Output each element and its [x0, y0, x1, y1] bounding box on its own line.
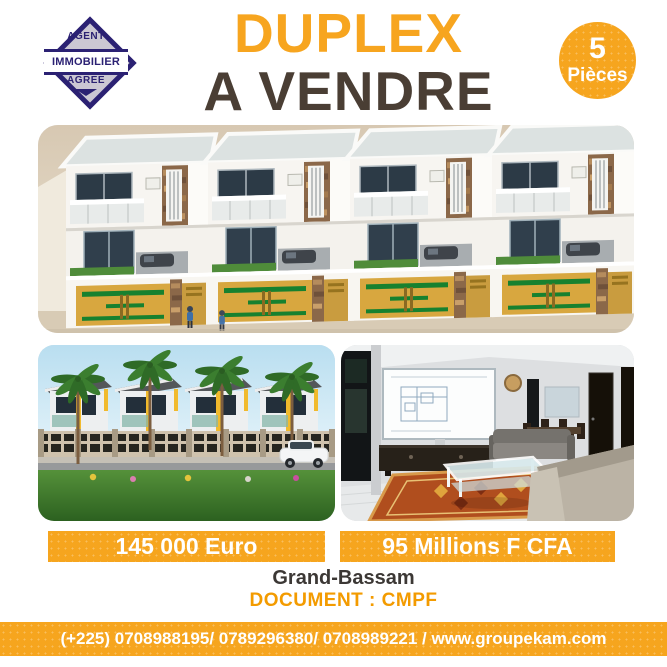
interior-render-svg [341, 345, 634, 521]
title-line-a-vendre: A VENDRE [140, 64, 557, 119]
price-badge-euro: 145 000 Euro [48, 531, 325, 562]
rooms-count: 5 [589, 34, 606, 64]
document-text: DOCUMENT : CMPF [20, 590, 667, 612]
exterior-render-image [38, 345, 335, 521]
price-badge-cfa: 95 Millions F CFA [340, 531, 615, 562]
main-render-svg [38, 125, 634, 333]
badge-text-agent: AGENT [42, 31, 130, 42]
agent-badge-logo: AGENT IMMOBILIER AGREE [42, 16, 130, 102]
main-render-image [38, 125, 634, 333]
exterior-render-svg [38, 345, 335, 521]
badge-text-immobilier: IMMOBILIER [44, 49, 128, 75]
contact-bar: (+225) 0708988195/ 0789296380/ 070898922… [0, 622, 667, 656]
rooms-label: Pièces [567, 66, 627, 87]
real-estate-flyer: AGENT IMMOBILIER AGREE DUPLEX A VENDRE 5… [0, 0, 667, 667]
badge-text-agree: AGREE [42, 75, 130, 86]
rooms-count-badge: 5 Pièces [559, 22, 636, 99]
badge-chevron-shape [75, 89, 97, 96]
page-title: DUPLEX A VENDRE [140, 6, 557, 119]
contact-text: (+225) 0708988195/ 0789296380/ 070898922… [60, 629, 606, 648]
interior-render-image [341, 345, 634, 521]
title-line-duplex: DUPLEX [140, 6, 557, 61]
location-text: Grand-Bassam [20, 567, 667, 590]
